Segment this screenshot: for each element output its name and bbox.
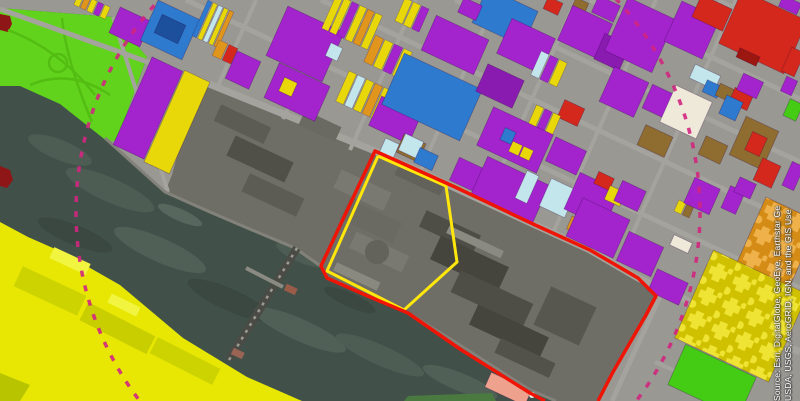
attribution-line-1: Source: Esri, DigitalGlobe, GeoEye, Eart…: [772, 206, 783, 401]
attribution-line-2: USDA, USGS, AeroGRID, IGN, and the GIS U…: [783, 206, 794, 401]
zoning-map-viewport[interactable]: Source: Esri, DigitalGlobe, GeoEye, Eart…: [0, 0, 800, 401]
zoning-map-canvas[interactable]: [0, 0, 800, 401]
map-attribution: Source: Esri, DigitalGlobe, GeoEye, Eart…: [772, 206, 794, 401]
